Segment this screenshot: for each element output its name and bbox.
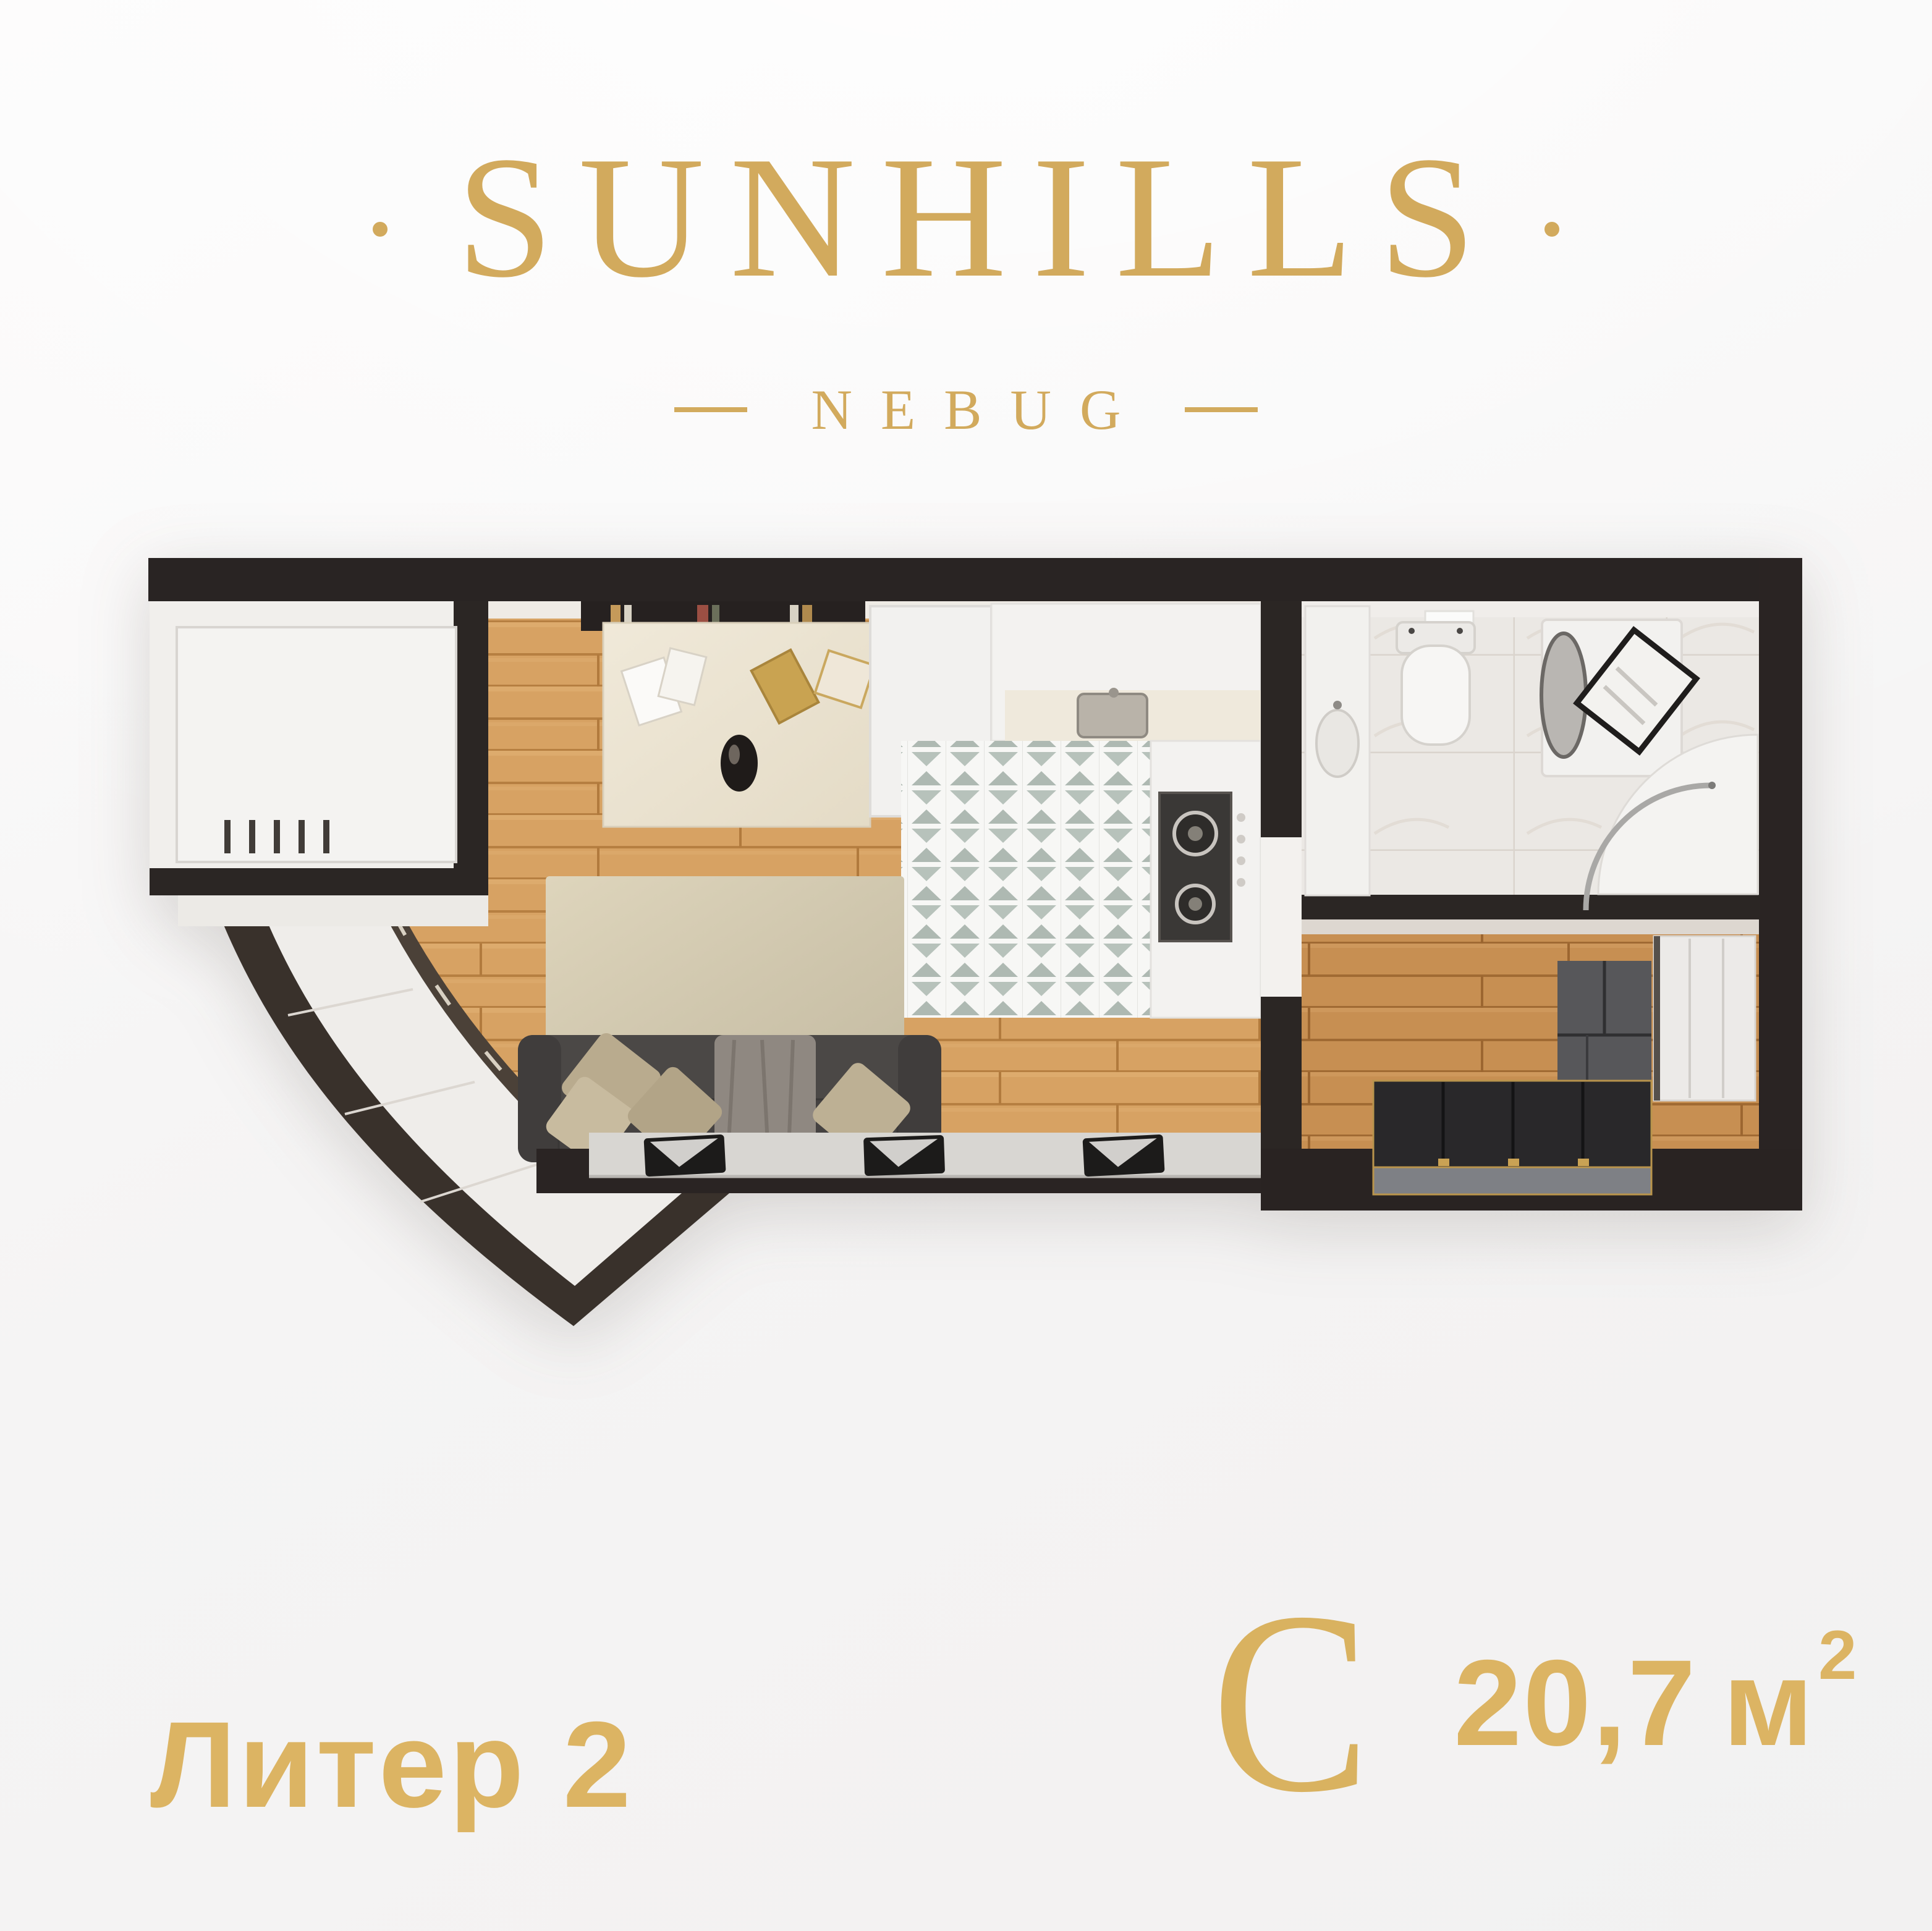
unit-area: 20,7 м 2 [1454,1642,1857,1764]
laptop [644,1135,726,1177]
bathroom-vanity [1305,606,1370,895]
entry-nook-right-wall [454,601,488,895]
decor-vase [721,735,758,792]
kitchen-faucet-icon [1109,688,1119,698]
toilet [1397,622,1475,745]
area-unit: м [1723,1642,1815,1764]
logo-left-dot-icon [373,222,388,237]
wardrobe-bedroom [1654,936,1755,1101]
floorplan-render [141,558,1803,1361]
laptop [1083,1135,1165,1177]
entry-shelf [178,895,488,926]
brand-tagline-row: NEBUG [0,377,1932,442]
unit-type-letter: С [1211,1573,1371,1832]
double-bed [1373,1081,1651,1194]
laptop [863,1135,945,1176]
logo-right-dot-icon [1544,222,1559,237]
bed-footboard [1373,1167,1651,1194]
kitchen-tile-floor [901,741,1151,1018]
unit-info: С 20,7 м 2 [1211,1573,1857,1832]
entry-nook-bottom-wall [150,868,488,895]
right-wall [1759,558,1802,1211]
tagline-left-dash-icon [674,407,747,412]
brand-header: SUNHILLS NEBUG [0,130,1932,442]
bath-bedroom-wall [1302,895,1760,919]
interior-door [1261,837,1302,997]
bedroom-inner-wall-face [1302,919,1759,934]
brand-name: SUNHILLS [431,130,1501,304]
brand-location: NEBUG [783,377,1150,442]
washing-machine [1541,620,1697,776]
kitchen-sink [1078,694,1147,737]
top-wall [148,558,1802,601]
brand-logo-row: SUNHILLS [0,130,1932,304]
wardrobe-cabinet-entry [177,627,456,862]
area-value: 20,7 [1454,1642,1697,1764]
building-label: Литер 2 [150,1694,633,1835]
decor-vase-highlight [729,745,740,764]
area-superscript: 2 [1818,1621,1857,1690]
tagline-right-dash-icon [1185,407,1258,412]
